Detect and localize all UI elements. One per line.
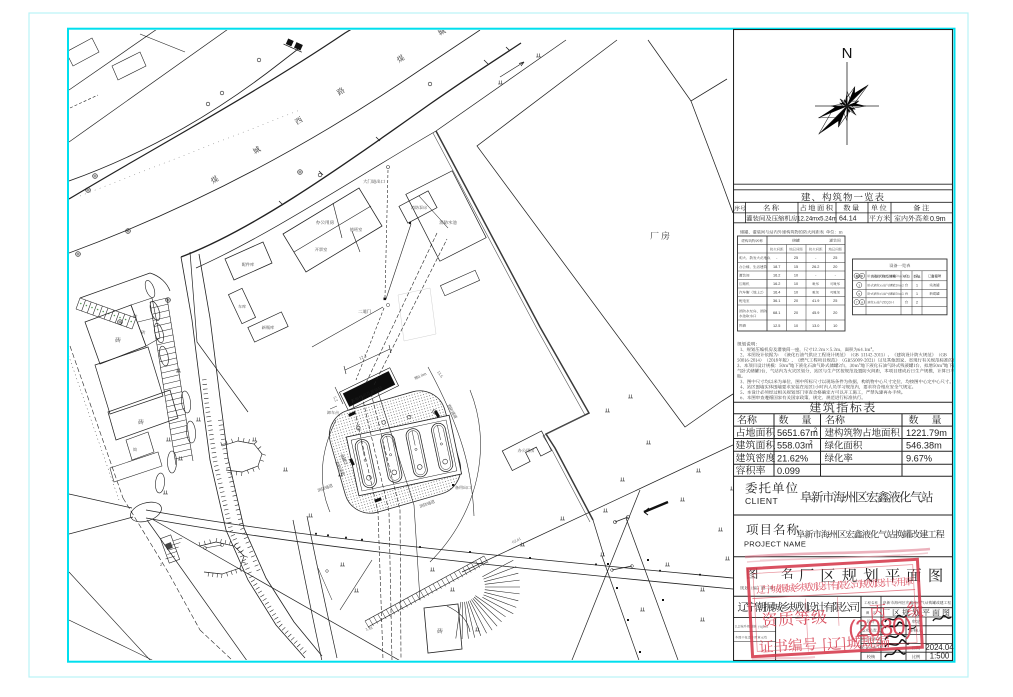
svg-text:CLIENT: CLIENT	[745, 496, 778, 506]
svg-text:2024.04: 2024.04	[925, 643, 954, 652]
svg-text:68.1: 68.1	[773, 311, 780, 315]
svg-text:2: 2	[916, 300, 918, 304]
svg-text:10: 10	[833, 324, 837, 328]
svg-text:0.099: 0.099	[777, 466, 800, 476]
svg-text:45.9: 45.9	[812, 311, 819, 315]
svg-text:16.4: 16.4	[773, 291, 780, 295]
svg-text:18.7: 18.7	[773, 265, 780, 269]
svg-text:12.24mx5.24m: 12.24mx5.24m	[797, 217, 837, 223]
svg-text:25: 25	[833, 256, 837, 260]
svg-text:PROJECT NAME: PROJECT NAME	[744, 540, 806, 549]
svg-text:10: 10	[794, 274, 798, 278]
svg-text:20: 20	[833, 265, 837, 269]
svg-text:12.5: 12.5	[773, 324, 780, 328]
svg-text:15: 15	[794, 265, 798, 269]
svg-text:20: 20	[833, 311, 837, 315]
svg-text:10: 10	[794, 324, 798, 328]
svg-text:0.9m: 0.9m	[930, 216, 946, 223]
svg-text:546.38m: 546.38m	[906, 440, 942, 450]
svg-text:25: 25	[794, 256, 798, 260]
svg-text:16.2: 16.2	[773, 274, 780, 278]
svg-text:9.67%: 9.67%	[906, 453, 932, 463]
svg-text:(2080): (2080)	[847, 613, 912, 643]
svg-text:1: 1	[916, 283, 918, 287]
svg-text:36.1: 36.1	[773, 299, 780, 303]
svg-text:2: 2	[916, 274, 918, 278]
svg-text:5651.67m: 5651.67m	[777, 428, 818, 438]
svg-text:1:500: 1:500	[930, 652, 950, 661]
svg-text:25: 25	[833, 299, 837, 303]
svg-text:41.9: 41.9	[812, 299, 819, 303]
svg-text:558.03m: 558.03m	[777, 440, 813, 450]
svg-text:26.2: 26.2	[812, 265, 819, 269]
svg-text:10: 10	[794, 291, 798, 295]
svg-text:20: 20	[794, 299, 798, 303]
svg-text:N: N	[842, 45, 853, 62]
svg-text:10: 10	[794, 282, 798, 286]
svg-text:13.0: 13.0	[812, 324, 819, 328]
svg-text:64.14: 64.14	[839, 216, 857, 223]
svg-text:20: 20	[794, 311, 798, 315]
svg-text:16.2: 16.2	[773, 282, 780, 286]
svg-text:1221.79m: 1221.79m	[906, 428, 947, 438]
svg-text:21.62%: 21.62%	[777, 453, 808, 463]
svg-text:1: 1	[916, 292, 918, 296]
